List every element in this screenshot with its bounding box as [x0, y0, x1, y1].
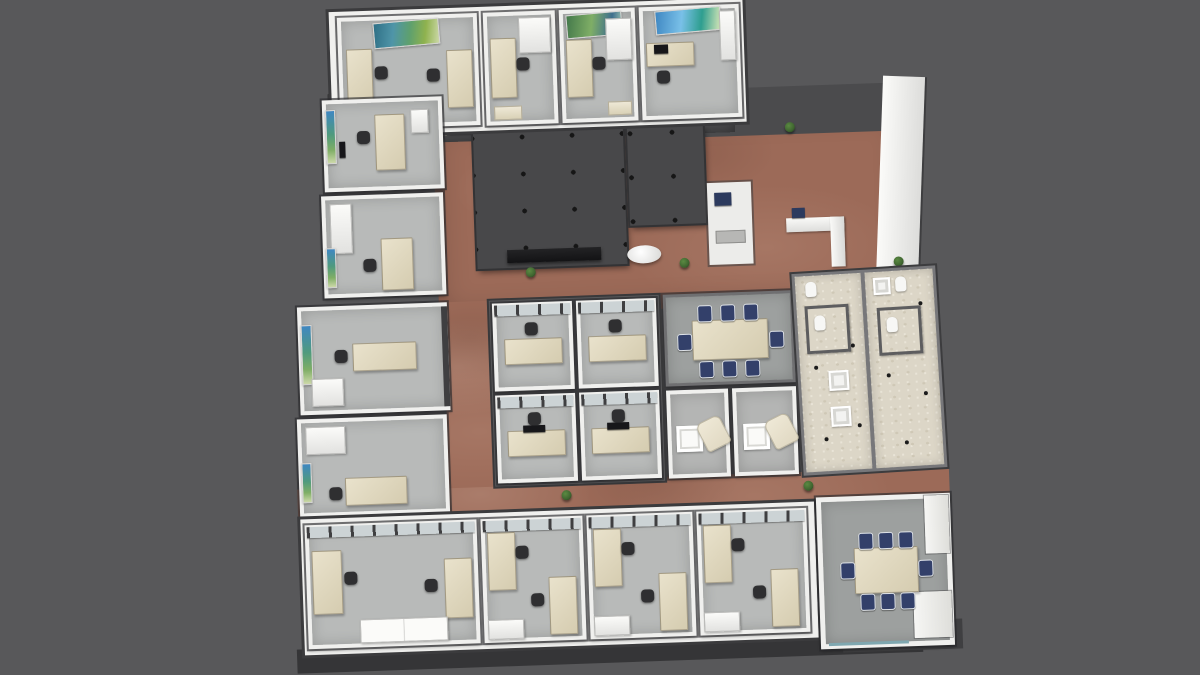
- wall-art: [326, 248, 337, 288]
- office-chair: [528, 412, 541, 425]
- desk: [381, 237, 415, 290]
- office-chair: [608, 319, 621, 332]
- conference-table: [692, 318, 769, 361]
- floor-drain: [918, 301, 922, 305]
- cabinet: [704, 611, 741, 632]
- conference-chair: [898, 531, 914, 549]
- conference-chair: [840, 562, 856, 580]
- cabinet: [488, 619, 525, 640]
- floorplan-viewport[interactable]: [0, 0, 1200, 675]
- office-chair: [424, 579, 437, 592]
- service-core-2: [627, 125, 706, 226]
- private-office-9: [304, 519, 480, 649]
- conference-room-b: [816, 493, 955, 650]
- floor-drain: [814, 366, 818, 370]
- wall-art: [301, 463, 312, 503]
- wall-art: [301, 325, 314, 385]
- sink: [873, 277, 891, 295]
- conference-chair: [743, 303, 759, 321]
- office-chair: [621, 542, 634, 555]
- office-chair: [515, 546, 528, 559]
- conference-chair: [860, 593, 876, 611]
- desk: [566, 39, 594, 98]
- bench: [494, 105, 522, 120]
- floor-drain: [887, 373, 891, 377]
- desk: [658, 572, 688, 631]
- conference-table: [854, 546, 920, 594]
- printer: [714, 192, 731, 206]
- office-chair: [329, 487, 342, 500]
- cabinet: [594, 615, 631, 636]
- office-building: [281, 0, 972, 675]
- workstation-3: [495, 393, 578, 484]
- private-office-12: [696, 508, 810, 636]
- media-counter: [507, 247, 601, 263]
- service-core-1: [473, 124, 628, 269]
- conference-chair: [677, 334, 693, 352]
- office-chair: [363, 259, 376, 272]
- conference-chair: [878, 532, 894, 550]
- floor-drain: [824, 437, 828, 441]
- toilet: [814, 315, 826, 331]
- bench: [608, 101, 632, 116]
- floor-drain: [851, 343, 855, 347]
- desk: [591, 426, 650, 454]
- private-office-2: [483, 10, 559, 125]
- monitor: [523, 425, 545, 433]
- wall-step: [924, 495, 950, 554]
- reception-desk-return: [830, 216, 846, 266]
- conference-room-a: [663, 290, 796, 386]
- monitor: [607, 422, 629, 430]
- conference-chair: [697, 305, 713, 323]
- bottom-office-wing: [300, 502, 818, 656]
- desk: [352, 341, 417, 371]
- workstation-1: [492, 301, 575, 392]
- office-chair: [531, 593, 544, 606]
- wall-display: [339, 142, 346, 158]
- desk: [548, 576, 578, 635]
- huddle-room-2: [732, 386, 799, 476]
- private-office-11: [586, 512, 696, 640]
- conference-chair: [699, 361, 715, 379]
- office-chair: [641, 589, 654, 602]
- toilet: [886, 317, 898, 333]
- desk: [504, 337, 563, 365]
- office-chair: [516, 57, 529, 70]
- conference-chair: [918, 559, 934, 577]
- office-chair: [657, 70, 670, 83]
- corridor-vertical: [443, 301, 495, 488]
- private-office-8: [297, 414, 450, 517]
- desk: [345, 476, 408, 506]
- office-chair: [612, 409, 625, 422]
- storage-cabinet: [605, 18, 632, 61]
- desk: [770, 568, 800, 627]
- conference-chair: [900, 592, 916, 610]
- private-office-5: [322, 96, 445, 192]
- desk: [311, 550, 343, 615]
- workstation-block: [489, 295, 665, 487]
- desk: [374, 114, 406, 171]
- private-office-4: [639, 4, 743, 120]
- private-office-3: [559, 8, 639, 124]
- office-chair: [427, 68, 440, 81]
- tall-cabinet: [719, 10, 737, 61]
- storage-cabinet: [518, 16, 551, 53]
- office-chair: [334, 350, 347, 363]
- floor-drain: [924, 391, 928, 395]
- credenza: [360, 616, 449, 643]
- workstation-2: [576, 298, 659, 389]
- copy-alcove: [707, 182, 754, 265]
- restroom-2: [864, 268, 944, 468]
- desk: [593, 528, 623, 587]
- huddle-room-1: [666, 388, 731, 478]
- office-chair: [375, 66, 388, 79]
- desk: [507, 429, 566, 457]
- conference-chair: [858, 532, 874, 550]
- floor-drain: [858, 423, 862, 427]
- conference-chair: [720, 304, 736, 322]
- office-chair: [753, 585, 766, 598]
- conference-chair: [769, 330, 785, 348]
- sink: [831, 406, 852, 427]
- conference-chair: [722, 360, 738, 378]
- toilet: [805, 282, 817, 298]
- office-chair: [344, 572, 357, 585]
- tall-cabinet: [329, 204, 353, 255]
- conference-chair: [880, 593, 896, 611]
- office-chair: [731, 538, 744, 551]
- laptop: [654, 44, 668, 53]
- wall-art: [325, 110, 337, 164]
- conference-chair: [745, 359, 761, 377]
- workstation-4: [579, 390, 662, 481]
- private-office-7: [297, 302, 451, 415]
- wall-step: [913, 591, 953, 638]
- private-office-6: [321, 192, 446, 298]
- desk: [444, 558, 474, 619]
- desk: [487, 532, 517, 591]
- restroom-block: [791, 265, 947, 475]
- toilet: [895, 276, 907, 292]
- floor-drain: [905, 440, 909, 444]
- restroom-1: [795, 273, 873, 473]
- office-chair: [592, 57, 605, 70]
- desk: [446, 49, 474, 108]
- reception-monitor: [792, 208, 805, 218]
- desk: [490, 38, 518, 99]
- work-table: [715, 230, 745, 244]
- private-office-10: [480, 516, 586, 643]
- pedestal: [410, 109, 429, 134]
- office-chair: [525, 322, 538, 335]
- pedestal: [311, 378, 344, 407]
- desk: [588, 334, 647, 362]
- sink: [828, 370, 849, 391]
- storage-cabinet: [305, 426, 346, 455]
- office-chair: [357, 131, 370, 144]
- stall-partition: [877, 305, 924, 356]
- stall-partition: [804, 304, 851, 355]
- desk: [703, 524, 733, 583]
